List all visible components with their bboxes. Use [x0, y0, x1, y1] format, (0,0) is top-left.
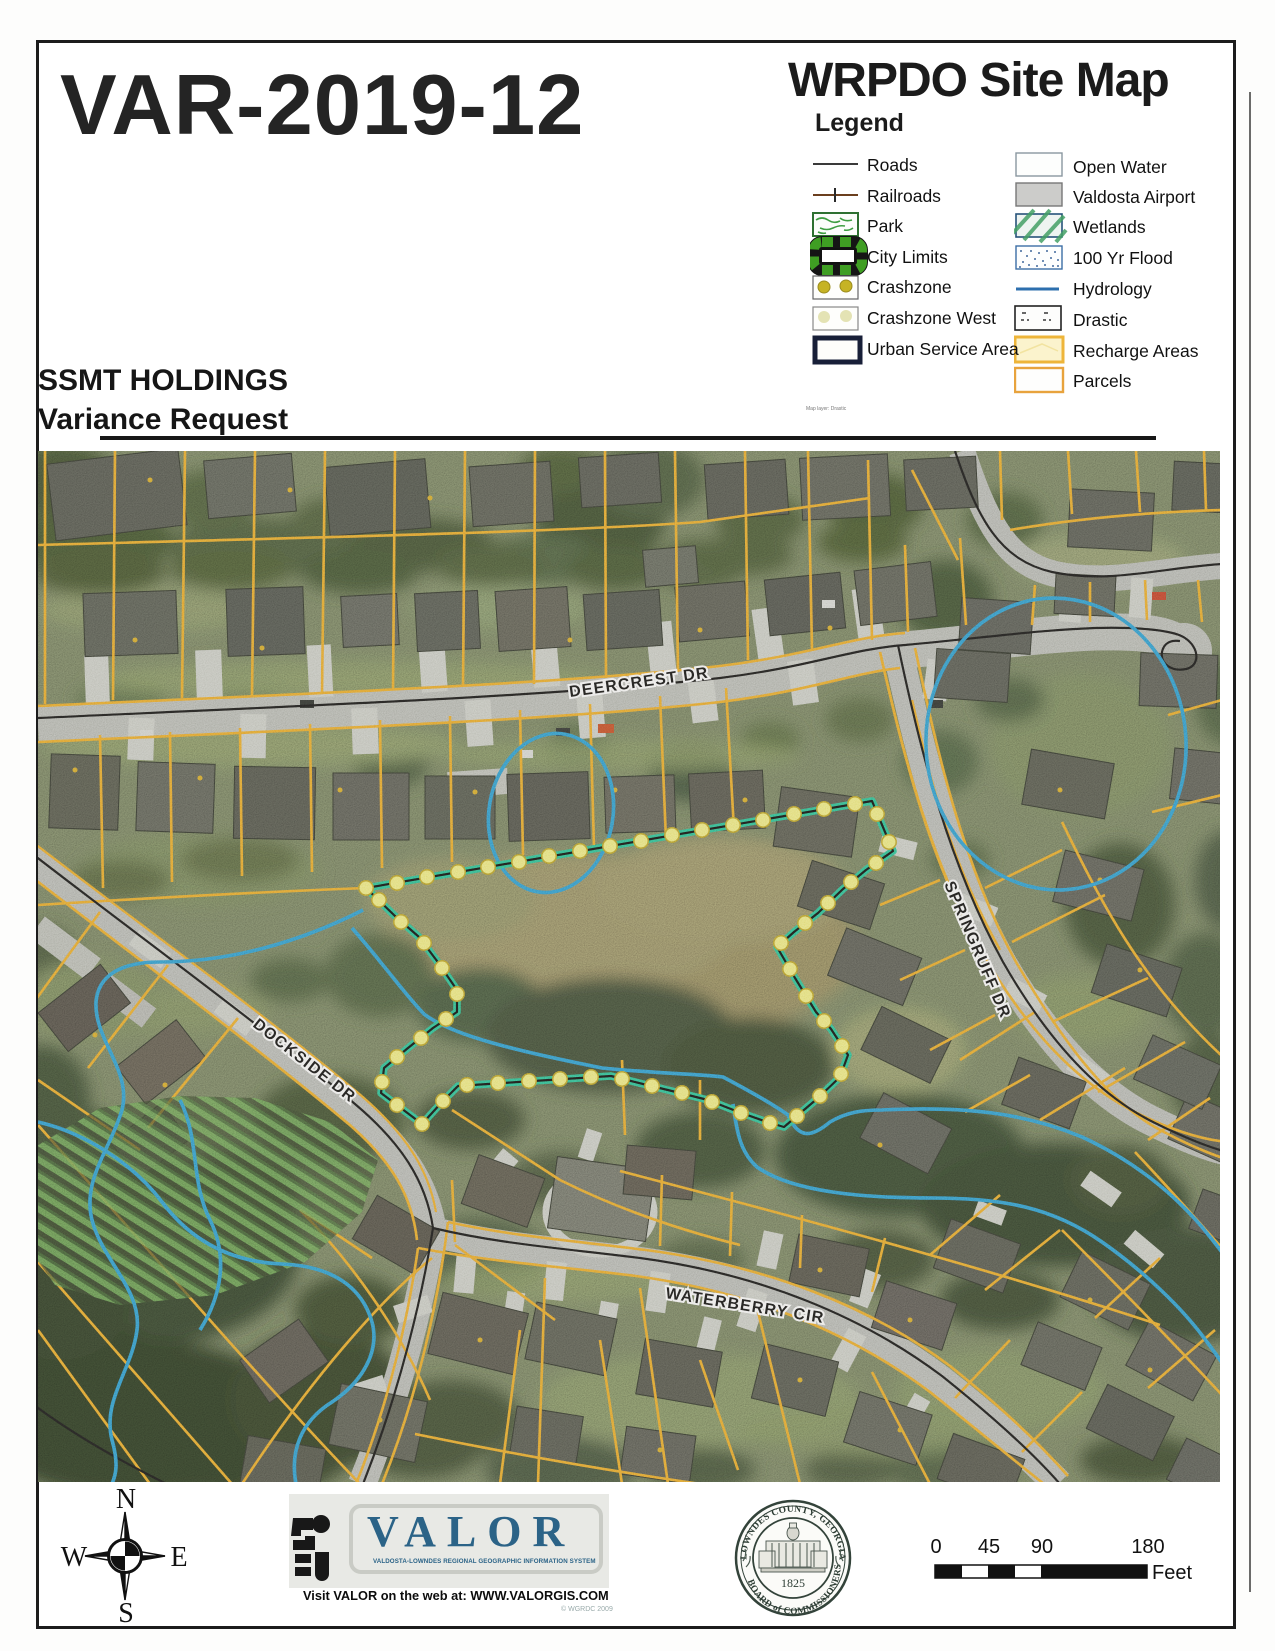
svg-text:VALOR: VALOR [367, 1507, 575, 1556]
svg-text:© WGRDC 2009: © WGRDC 2009 [561, 1605, 613, 1613]
svg-text:1825: 1825 [781, 1576, 805, 1590]
svg-text:S: S [118, 1598, 134, 1628]
svg-text:N: N [116, 1488, 136, 1515]
svg-text:W: W [61, 1542, 88, 1573]
svg-text:VALDOSTA-LOWNDES REGIONAL GEOG: VALDOSTA-LOWNDES REGIONAL GEOGRAPHIC INF… [373, 1558, 596, 1565]
svg-text:Visit VALOR on the web at: WWW: Visit VALOR on the web at: WWW.VALORGIS.… [303, 1588, 609, 1603]
svg-text:E: E [170, 1542, 187, 1573]
